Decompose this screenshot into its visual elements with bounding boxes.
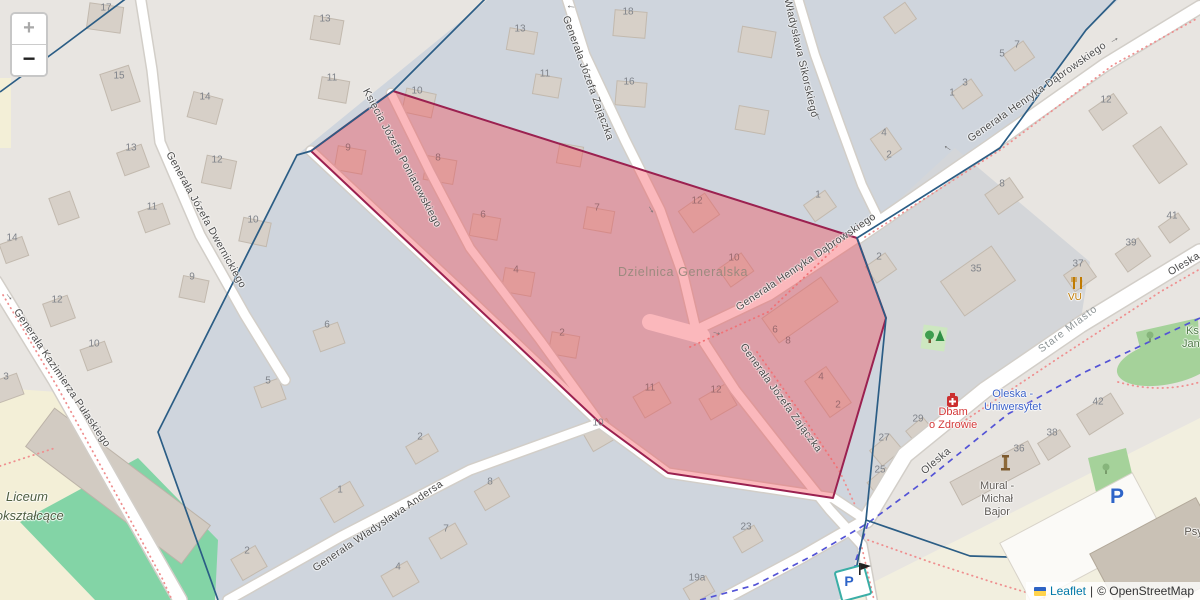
zoom-in-button[interactable]: + <box>12 14 46 45</box>
map-canvas <box>0 0 1200 600</box>
attribution-bar: Leaflet | © OpenStreetMap <box>1026 582 1200 600</box>
building <box>613 10 647 39</box>
zoom-out-button[interactable]: − <box>12 45 46 75</box>
attribution-separator: | <box>1090 584 1093 598</box>
building <box>735 106 769 135</box>
osm-attribution: © OpenStreetMap <box>1097 584 1194 598</box>
zoom-control: + − <box>10 12 48 77</box>
building <box>615 81 647 108</box>
leaflet-map[interactable]: Dzielnica Generalska Dbam o Zdrowie Oles… <box>0 0 1200 600</box>
building <box>86 3 123 33</box>
building <box>179 276 209 303</box>
building <box>506 28 537 55</box>
platform-highlight <box>835 565 872 600</box>
leaflet-link[interactable]: Leaflet <box>1050 584 1086 598</box>
building <box>532 74 561 98</box>
building <box>239 217 271 246</box>
building <box>318 77 349 104</box>
small-park <box>920 324 947 351</box>
ukraine-flag-icon <box>1034 587 1046 596</box>
building <box>310 16 344 45</box>
building <box>201 155 236 189</box>
building <box>738 26 776 58</box>
